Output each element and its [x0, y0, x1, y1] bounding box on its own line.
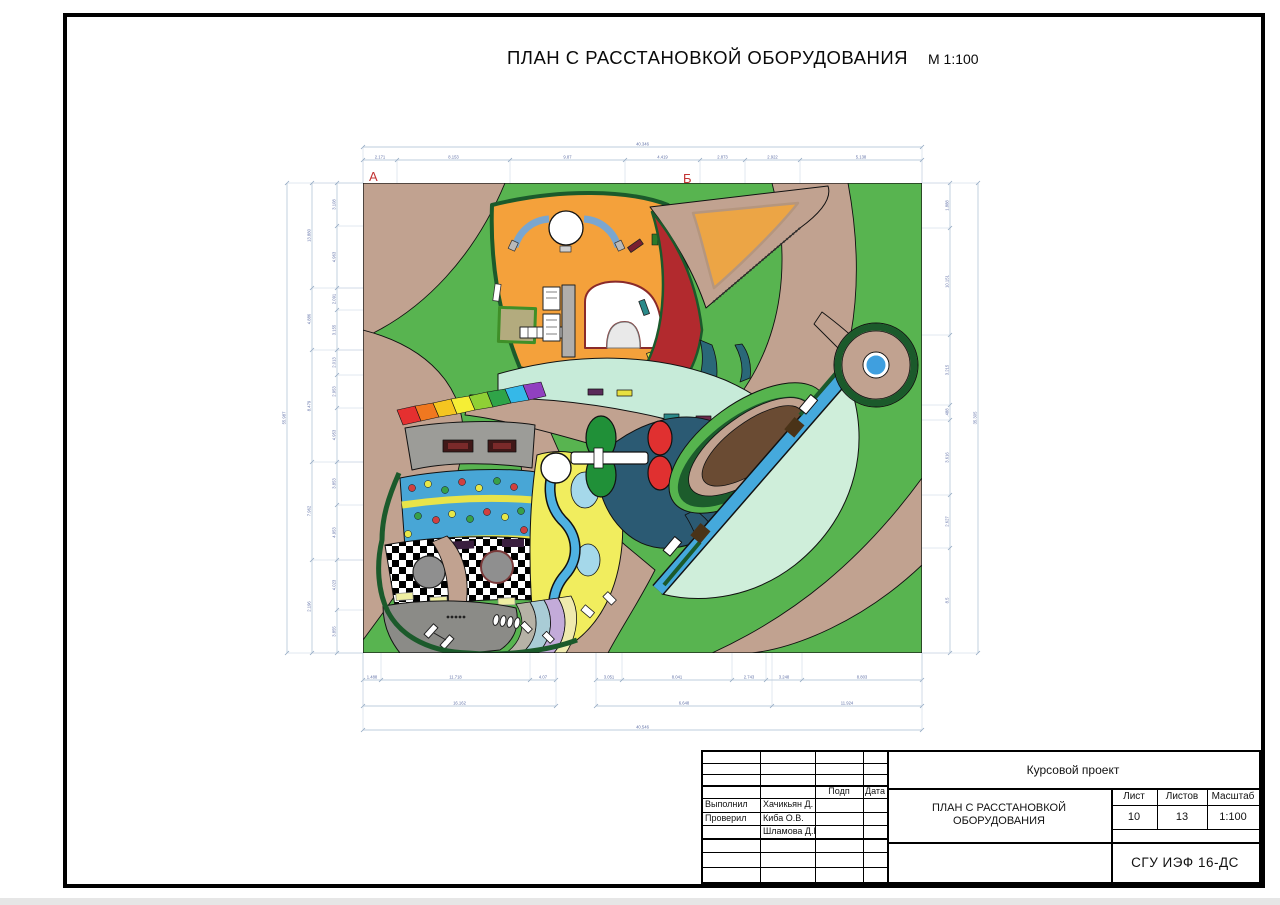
round-table	[481, 551, 513, 583]
scale-value: 1:100	[1207, 805, 1259, 829]
dimension-label: 40.546	[636, 725, 649, 730]
sheets-total: 13	[1157, 805, 1207, 829]
dimension-label: 9.87	[563, 155, 572, 160]
bench	[617, 390, 632, 396]
dimension-label: 2.091	[332, 293, 337, 304]
organization: СГУ ИЭФ 16-ДС	[1111, 842, 1259, 882]
dimension-label: 2.922	[767, 155, 778, 160]
dimension-label: 4.953	[332, 429, 337, 440]
sheets-label: Листов	[1157, 788, 1207, 805]
role-checked: Проверил	[705, 812, 760, 825]
dimension-label: 7.962	[307, 505, 312, 516]
dimension-label: 13.880	[307, 228, 312, 241]
dimension-label: 16.162	[453, 701, 466, 706]
window-edge	[0, 898, 1280, 905]
dimension-label: 1.488	[367, 675, 378, 680]
tb-line	[1111, 829, 1259, 830]
dimension-label: 3.248	[779, 675, 790, 680]
page-title: ПЛАН С РАССТАНОВКОЙ ОБОРУДОВАНИЯ	[507, 47, 908, 69]
dimension-label: 3.853	[332, 478, 337, 489]
dimension-label: 2.013	[332, 357, 337, 368]
dimension-label: 3.155	[332, 324, 337, 335]
tb-line	[703, 852, 887, 853]
dimension-label: 4.023	[332, 579, 337, 590]
dimension-label: 11.718	[449, 675, 462, 680]
dimension-label: 55.987	[282, 411, 287, 424]
carousel-circle	[549, 211, 583, 245]
dimension-label: 2.873	[717, 155, 728, 160]
dimension-label: 5.138	[856, 155, 867, 160]
scale-label: Масштаб	[1207, 788, 1259, 805]
zone-fitness-gray	[383, 601, 521, 653]
dimension-label: 3.855	[332, 626, 337, 637]
dimension-label: 8.5	[945, 597, 950, 603]
doc-title: ПЛАН С РАССТАНОВКОЙ ОБОРУДОВАНИЯ	[887, 788, 1111, 842]
drawing-sheet: ПЛАН С РАССТАНОВКОЙ ОБОРУДОВАНИЯ М 1:100…	[63, 13, 1265, 888]
role-executed: Выполнил	[705, 798, 760, 811]
tb-line	[760, 752, 761, 882]
dimension-label: 35.305	[973, 411, 978, 424]
sign-column-header: Подп	[815, 785, 863, 798]
dimension-label: 8.803	[857, 675, 868, 680]
tb-line	[863, 752, 864, 882]
axis-letter-a: А	[369, 169, 378, 184]
sheet-label: Лист	[1111, 788, 1157, 805]
dimension-label: 3.051	[604, 675, 615, 680]
drawing-title: ПЛАН С РАССТАНОВКОЙ ОБОРУДОВАНИЯ М 1:100	[507, 47, 979, 69]
dimension-label: 6.648	[679, 701, 690, 706]
name-third: Шламова Д.В.	[763, 825, 815, 838]
dimension-label: 8.479	[307, 400, 312, 411]
dimension-label: 4.07	[539, 675, 548, 680]
sheet-number: 10	[1111, 805, 1157, 829]
dimension-label: 2.953	[332, 386, 337, 397]
dimension-label: 10.151	[945, 274, 950, 287]
site-plan-svg: 40.3462.1718.1539.874.4192.8732.9225.138…	[270, 125, 1000, 770]
dotted-band	[400, 470, 536, 548]
dimension-label: 40.346	[636, 142, 649, 147]
dimension-label: 2.627	[945, 516, 950, 527]
dimension-label: 11.924	[841, 701, 854, 706]
dimension-label: 3.108	[332, 199, 337, 210]
tb-line	[703, 867, 887, 868]
pool-circle-feature	[834, 323, 918, 407]
dimension-label: 1.888	[945, 200, 950, 211]
name-checked: Киба О.В.	[763, 812, 815, 825]
tb-line	[703, 763, 887, 764]
name-executed: Хачикьян Д.	[763, 798, 815, 811]
dimension-label: 4.886	[307, 313, 312, 324]
bench	[588, 389, 603, 395]
round-table	[413, 556, 445, 588]
dimension-label: 4.419	[657, 155, 668, 160]
page: { "title": { "text": "ПЛАН С РАССТАНОВКО…	[0, 0, 1280, 905]
tb-line	[703, 774, 887, 775]
dimension-label: 4.953	[332, 527, 337, 538]
dimension-label: 2.743	[744, 675, 755, 680]
dimension-label: 2.196	[307, 601, 312, 612]
dimension-label: 2.171	[375, 155, 386, 160]
dimension-label: 3.215	[945, 364, 950, 375]
dimension-label: 3.616	[945, 452, 950, 463]
dimension-label: .488	[945, 408, 950, 417]
dimension-label: 8.041	[672, 675, 683, 680]
dimension-label: 8.153	[448, 155, 459, 160]
project-type: Курсовой проект	[887, 752, 1259, 788]
dimension-label: 4.963	[332, 251, 337, 262]
date-column-header: Дата	[863, 785, 887, 798]
title-block: Подп Дата Выполнил Хачикьян Д. Проверил …	[701, 750, 1261, 884]
tb-line	[815, 752, 816, 882]
zone-gray-band	[405, 422, 535, 470]
scale-note: М 1:100	[928, 51, 979, 67]
tb-line	[703, 838, 887, 840]
